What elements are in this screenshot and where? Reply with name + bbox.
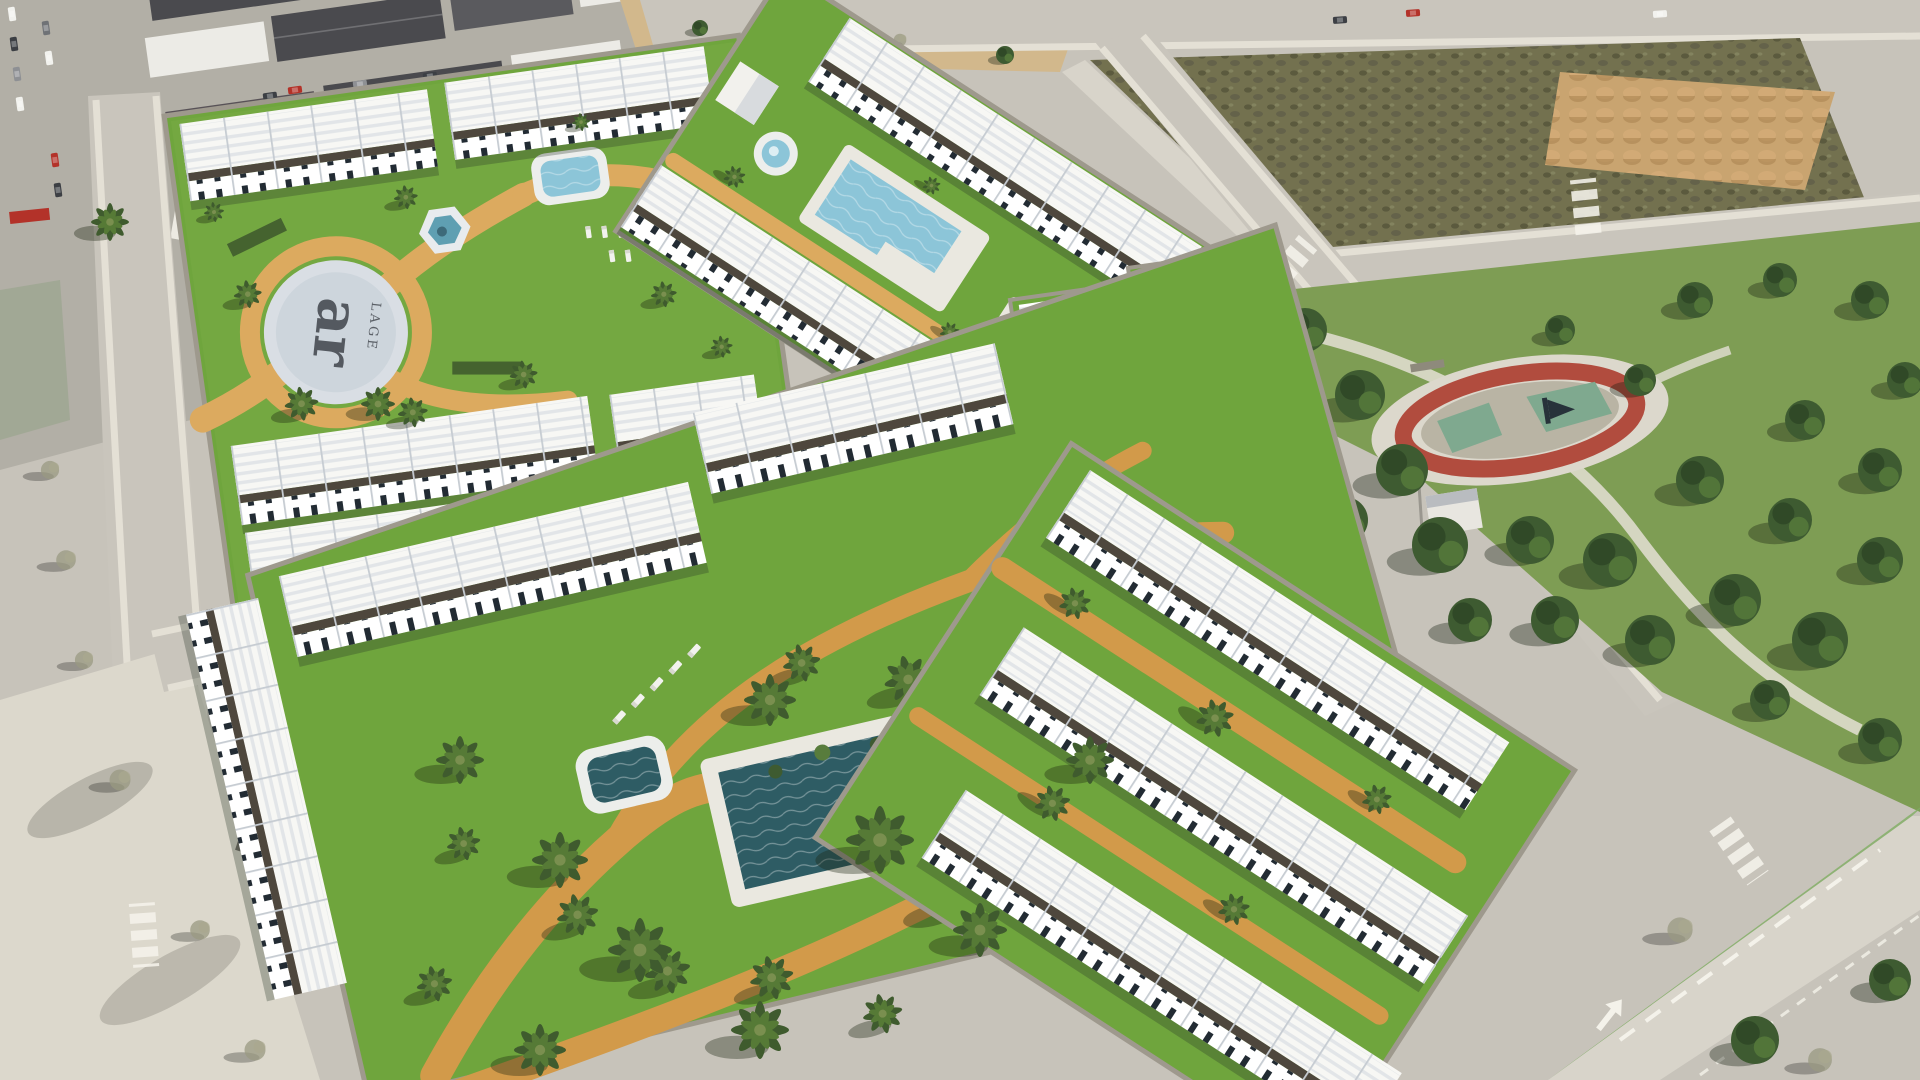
scene-canvas: ar LAGE	[0, 0, 1920, 1080]
aerial-render-image: ar LAGE	[0, 0, 1920, 1080]
red-car	[1406, 9, 1420, 17]
crosswalk	[129, 902, 159, 968]
plaza-logo-text-large: ar	[298, 295, 373, 371]
hedge-strip	[0, 280, 70, 440]
